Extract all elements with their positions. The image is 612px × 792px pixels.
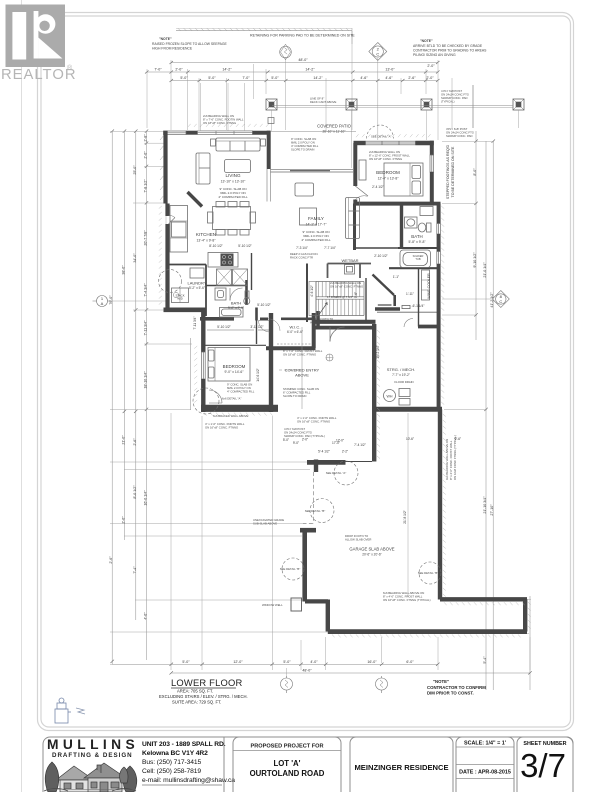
svg-text:7'-7" x 19'-2": 7'-7" x 19'-2" (392, 373, 410, 377)
svg-text:38'-6": 38'-6" (121, 265, 125, 275)
svg-text:76'-0": 76'-0" (109, 295, 113, 305)
svg-text:LOWER FLOOR: LOWER FLOOR (171, 677, 243, 688)
svg-text:A: A (101, 301, 104, 306)
svg-text:STRG. / MECH.: STRG. / MECH. (387, 367, 415, 372)
svg-text:2'-6": 2'-6" (121, 516, 125, 524)
svg-text:2'-6": 2'-6" (109, 556, 113, 564)
svg-text:20'-6" x 20'-6": 20'-6" x 20'-6" (362, 553, 382, 557)
svg-text:16'-0": 16'-0" (367, 660, 377, 664)
svg-text:5'-0": 5'-0" (208, 76, 216, 80)
svg-text:SEE DETAIL "A": SEE DETAIL "A" (326, 471, 346, 475)
svg-text:TO BE DETERMINED ON SITE: TO BE DETERMINED ON SITE (451, 146, 455, 197)
svg-text:41'-2 1/2": 41'-2 1/2" (490, 292, 494, 308)
svg-text:13'-4" x 9'-8": 13'-4" x 9'-8" (197, 239, 217, 243)
svg-text:-6'-1 1/4": -6'-1 1/4" (412, 304, 425, 308)
svg-text:13'-0": 13'-0" (385, 68, 395, 72)
svg-text:6x6 BRACED WALL ABOVE: 6x6 BRACED WALL ABOVE (213, 414, 249, 418)
svg-text:RACK CONC FTR: RACK CONC FTR (290, 256, 313, 260)
svg-text:FAMILY: FAMILY (308, 216, 324, 221)
svg-text:CONTRACTOR TO CONFIRM: CONTRACTOR TO CONFIRM (427, 685, 486, 690)
svg-text:TUB: TUB (415, 257, 420, 261)
svg-text:e-mail: mullinsdrafting@shaw.c: e-mail: mullinsdrafting@shaw.ca (142, 777, 235, 784)
svg-text:BATH: BATH (411, 234, 422, 239)
svg-text:21'-10 3/4": 21'-10 3/4" (483, 496, 487, 514)
svg-text:DIM PRIOR TO CONST.: DIM PRIOR TO CONST. (427, 691, 474, 696)
svg-text:3'-11 1/2": 3'-11 1/2" (250, 325, 263, 329)
svg-text:19'-2 1/4": 19'-2 1/4" (376, 345, 380, 358)
svg-text:8'-10 1/2": 8'-10 1/2" (209, 244, 222, 248)
svg-text:(TYPICAL): (TYPICAL) (441, 100, 455, 104)
svg-text:4" COMPACTED FILL: 4" COMPACTED FILL (227, 390, 255, 394)
svg-text:2'-6": 2'-6" (455, 437, 461, 441)
svg-text:SCALE: 1/4" = 1': SCALE: 1/4" = 1' (464, 741, 506, 747)
svg-text:26'-10" x 11'-10": 26'-10" x 11'-10" (323, 130, 346, 134)
svg-text:ON 16"x8" CONC. FTNNG: ON 16"x8" CONC. FTNNG (297, 420, 330, 424)
svg-text:5'-0" x 9'-6": 5'-0" x 9'-6" (228, 306, 244, 310)
svg-text:2'-8": 2'-8" (144, 134, 148, 142)
svg-text:14'-2": 14'-2" (222, 68, 232, 72)
svg-text:WETBAR: WETBAR (341, 258, 358, 263)
svg-text:48'-0": 48'-0" (298, 58, 308, 62)
svg-text:FLOOR DRAIN: FLOOR DRAIN (394, 380, 413, 384)
svg-text:9'-6": 9'-6" (354, 292, 358, 298)
svg-text:HIGH FROM RESIDENCE: HIGH FROM RESIDENCE (152, 47, 193, 51)
svg-text:21'-0": 21'-0" (121, 435, 125, 445)
svg-text:C: C (376, 52, 379, 57)
svg-text:5'-0": 5'-0" (283, 660, 291, 664)
svg-text:SLOPE TO DRAIN: SLOPE TO DRAIN (283, 394, 306, 398)
svg-text:DECK CANT ABOVE: DECK CANT ABOVE (310, 100, 337, 104)
svg-text:UNIT 203 - 1889 SPALL RD.: UNIT 203 - 1889 SPALL RD. (142, 741, 226, 748)
svg-text:4'-6": 4'-6" (144, 612, 148, 620)
svg-text:RETAINING FOR PARKING PAD TO B: RETAINING FOR PARKING PAD TO BE DETERMIN… (250, 34, 355, 38)
svg-text:SUB-SLAB ABOVE: SUB-SLAB ABOVE (253, 522, 277, 526)
svg-text:14'-2": 14'-2" (305, 68, 315, 72)
svg-text:48'-0": 48'-0" (302, 668, 312, 672)
svg-text:16'-0 1/4": 16'-0 1/4" (144, 490, 148, 506)
svg-text:7'-3 1/4": 7'-3 1/4" (296, 246, 308, 250)
svg-text:GARAGE SLAB ABOVE: GARAGE SLAB ABOVE (349, 547, 394, 552)
svg-text:5'-4": 5'-4" (483, 656, 487, 664)
svg-text:7'-8 1/2": 7'-8 1/2" (144, 179, 148, 193)
svg-text:12'-4" x 13'-8": 12'-4" x 13'-8" (378, 177, 400, 181)
svg-text:SUITE AREA: 729 SQ. FT.: SUITE AREA: 729 SQ. FT. (172, 700, 221, 705)
svg-text:Kelowna BC V1Y 4R2: Kelowna BC V1Y 4R2 (142, 750, 208, 757)
svg-text:MEINZINGER RESIDENCE: MEINZINGER RESIDENCE (354, 763, 448, 772)
svg-text:5'-10 1/2": 5'-10 1/2" (257, 303, 270, 307)
svg-text:7'-4 3/4": 7'-4 3/4" (144, 283, 148, 297)
svg-text:1'-11": 1'-11" (406, 292, 414, 296)
svg-text:W/D: W/D (177, 297, 182, 301)
svg-text:LIVING: LIVING (225, 173, 240, 178)
svg-text:4'-0": 4'-0" (310, 660, 318, 664)
svg-text:SLOPE TO DRAIN: SLOPE TO DRAIN (291, 148, 314, 152)
svg-text:9'-0" x 14'-6": 9'-0" x 14'-6" (225, 370, 245, 374)
svg-text:5'-10 1/2": 5'-10 1/2" (238, 244, 251, 248)
svg-text:6'-0" x 6'-6": 6'-0" x 6'-6" (287, 330, 303, 334)
svg-text:25'-0": 25'-0" (133, 165, 137, 175)
svg-text:STEPPED FOOTINGS AS REQ'D: STEPPED FOOTINGS AS REQ'D (446, 144, 450, 199)
svg-text:5'-4 1/2": 5'-4 1/2" (318, 450, 330, 454)
svg-text:EXCLUDING STAIRS / ELEV. / STR: EXCLUDING STAIRS / ELEV. / STRG. / MECH. (159, 694, 248, 699)
svg-text:7'-0": 7'-0" (154, 68, 162, 72)
svg-text:2'-6": 2'-6" (133, 438, 137, 446)
svg-text:34'-0": 34'-0" (133, 253, 137, 263)
svg-text:LOT 'A': LOT 'A' (273, 759, 300, 768)
svg-text:LAUNDRY: LAUNDRY (187, 281, 206, 286)
svg-text:4'-6": 4'-6" (360, 76, 368, 80)
svg-text:ON 18"x8" CONC. FTNNG: ON 18"x8" CONC. FTNNG (283, 353, 316, 357)
svg-text:2'-4 1/2": 2'-4 1/2" (372, 185, 384, 189)
svg-text:13'-10" x 13'-10": 13'-10" x 13'-10" (221, 180, 246, 184)
svg-text:5'-10 1/2": 5'-10 1/2" (217, 325, 230, 329)
svg-text:SEE DETAIL "A": SEE DETAIL "A" (371, 135, 391, 139)
svg-text:2'-2": 2'-2" (342, 450, 348, 454)
svg-text:WINDOW WELL: WINDOW WELL (262, 603, 283, 607)
svg-text:14'-6 1/2": 14'-6 1/2" (256, 368, 260, 381)
svg-text:2'-0": 2'-0" (302, 438, 308, 442)
svg-text:5'-0": 5'-0" (271, 76, 279, 80)
svg-text:ON 18"x8" CONC. FTNNG: ON 18"x8" CONC. FTNNG (203, 121, 236, 125)
svg-text:5'-8" x 9'-8": 5'-8" x 9'-8" (408, 240, 426, 244)
svg-text:5'-0": 5'-0" (283, 438, 289, 442)
svg-text:PILING/ SIZING AN GIVING: PILING/ SIZING AN GIVING (413, 53, 456, 57)
svg-text:ON 16"x8" CONC. FTNNG: ON 16"x8" CONC. FTNNG (330, 285, 363, 289)
svg-text:WH: WH (387, 395, 393, 399)
svg-text:7'-4": 7'-4" (133, 566, 137, 574)
svg-text:5'-0": 5'-0" (180, 76, 188, 80)
svg-text:18'-10 1/4": 18'-10 1/4" (144, 371, 148, 389)
svg-text:DRAFTING & DESIGN: DRAFTING & DESIGN (52, 752, 133, 759)
svg-text:14'-2": 14'-2" (313, 76, 323, 80)
svg-text:5'-2" x 5'-6": 5'-2" x 5'-6" (189, 286, 205, 290)
svg-text:ON 16"x8" CONC. FTNNG: ON 16"x8" CONC. FTNNG (205, 426, 238, 430)
svg-text:1'-1": 1'-1" (393, 275, 399, 279)
svg-text:12'-0": 12'-0" (233, 660, 243, 664)
svg-text:ON 16"x8" CONC. FTNNG: ON 16"x8" CONC. FTNNG (369, 157, 402, 161)
svg-text:3/7: 3/7 (520, 747, 566, 784)
svg-text:7'-11 3/4": 7'-11 3/4" (193, 316, 197, 329)
svg-text:4'-6 1/2": 4'-6 1/2" (310, 285, 314, 297)
svg-text:5'-0": 5'-0" (182, 660, 190, 664)
svg-text:BATH: BATH (231, 301, 241, 306)
svg-text:Bus: (250) 717-3415: Bus: (250) 717-3415 (142, 759, 201, 766)
svg-text:PROPOSED PROJECT FOR: PROPOSED PROJECT FOR (250, 744, 323, 750)
svg-text:9'-10 1/2": 9'-10 1/2" (473, 252, 477, 268)
svg-text:SEE DETAIL "B": SEE DETAIL "B" (418, 571, 438, 575)
svg-text:7'-4 1/2": 7'-4 1/2" (354, 443, 366, 447)
svg-text:BEDROOM: BEDROOM (223, 364, 246, 369)
svg-text:17 RISERS @ 7 3/4": 17 RISERS @ 7 3/4" (327, 295, 353, 299)
svg-text:7'-7 1/4": 7'-7 1/4" (324, 246, 336, 250)
svg-text:SEE DETAIL "B": SEE DETAIL "B" (305, 509, 325, 513)
svg-text:DATE : APR-08-2015: DATE : APR-08-2015 (459, 770, 511, 776)
svg-text:"NOTE": "NOTE" (433, 679, 449, 684)
svg-text:ON 16"x8" CONC. FTNNG (TYPICAL: ON 16"x8" CONC. FTNNG (TYPICAL) (383, 598, 431, 602)
svg-text:MULLINS: MULLINS (47, 737, 139, 752)
svg-text:7'-11 3/4": 7'-11 3/4" (144, 320, 148, 336)
svg-text:9'-0": 9'-0" (293, 441, 299, 445)
svg-text:10'-6": 10'-6" (406, 437, 414, 441)
svg-text:7'-0": 7'-0" (242, 76, 250, 80)
svg-text:ALLOW SLAB OVER: ALLOW SLAB OVER (310, 321, 336, 325)
svg-text:12'-0": 12'-0" (336, 439, 344, 443)
svg-text:"NOTE": "NOTE" (159, 37, 172, 41)
svg-text:SEE DETAIL "B": SEE DETAIL "B" (280, 567, 300, 571)
svg-text:"NOTE": "NOTE" (420, 39, 433, 43)
svg-text:Cell: (250) 258-7819: Cell: (250) 258-7819 (142, 768, 201, 775)
svg-text:21'-8 1/2": 21'-8 1/2" (403, 510, 407, 523)
svg-text:2'-0": 2'-0" (175, 68, 183, 72)
svg-text:8'-0 1/2": 8'-0 1/2" (133, 485, 137, 499)
svg-text:W.I.C.: W.I.C. (290, 325, 301, 330)
svg-text:RAISED FROZEN SLOPE TO ALLOW S: RAISED FROZEN SLOPE TO ALLOW SEEPAGE (152, 42, 228, 46)
svg-text:27'-10": 27'-10" (490, 504, 494, 516)
svg-text:REALTOR: REALTOR (1, 67, 77, 83)
svg-text:8'-0": 8'-0" (473, 168, 477, 176)
svg-text:®: ® (67, 64, 73, 72)
svg-text:2'-6": 2'-6" (144, 151, 148, 159)
svg-text:ALLOW SLAB OVER: ALLOW SLAB OVER (345, 538, 371, 542)
svg-text:2'-10 1/2": 2'-10 1/2" (374, 254, 387, 258)
svg-text:6x6 DETAIL "A": 6x6 DETAIL "A" (222, 397, 241, 401)
svg-text:ARRIVE BTLD TO BE CHECKED BY G: ARRIVE BTLD TO BE CHECKED BY GRADE (413, 44, 483, 48)
svg-text:2'-0": 2'-0" (426, 76, 434, 80)
svg-text:WINE COOLER: WINE COOLER (427, 273, 431, 299)
svg-text:2'-6": 2'-6" (408, 76, 416, 80)
svg-text:BEDROOM: BEDROOM (376, 170, 400, 175)
svg-text:KITCHEN: KITCHEN (196, 232, 216, 237)
svg-text:OURTOLAND ROAD: OURTOLAND ROAD (250, 769, 325, 778)
svg-text:4" COMPACTED FILL: 4" COMPACTED FILL (301, 238, 331, 242)
svg-text:AREA: 705 SQ. FT.: AREA: 705 SQ. FT. (177, 689, 213, 694)
svg-text:ABOVE: ABOVE (295, 373, 309, 378)
svg-text:SWAMP CONC. PAD: SWAMP CONC. PAD (446, 134, 473, 138)
svg-text:4'-6": 4'-6" (385, 76, 393, 80)
svg-text:ON 16x8 CONC FTNNG (TYPICAL): ON 16x8 CONC FTNNG (TYPICAL) (453, 435, 457, 480)
svg-text:C: C (499, 299, 502, 304)
svg-text:2'-0": 2'-0" (427, 64, 435, 68)
svg-text:CONTRACTOR PRIM TO GRADING TO: CONTRACTOR PRIM TO GRADING TO AREAS (413, 49, 487, 53)
svg-text:21'-0 1/4": 21'-0 1/4" (483, 262, 487, 278)
svg-text:20'-7 7/8": 20'-7 7/8" (144, 230, 148, 246)
svg-text:14'-1" x 17'-7": 14'-1" x 17'-7" (306, 223, 328, 227)
svg-text:6'-0": 6'-0" (406, 660, 414, 664)
svg-text:4" COMPACTED FILL: 4" COMPACTED FILL (218, 195, 248, 199)
svg-text:COVERED PATIO: COVERED PATIO (317, 124, 352, 129)
